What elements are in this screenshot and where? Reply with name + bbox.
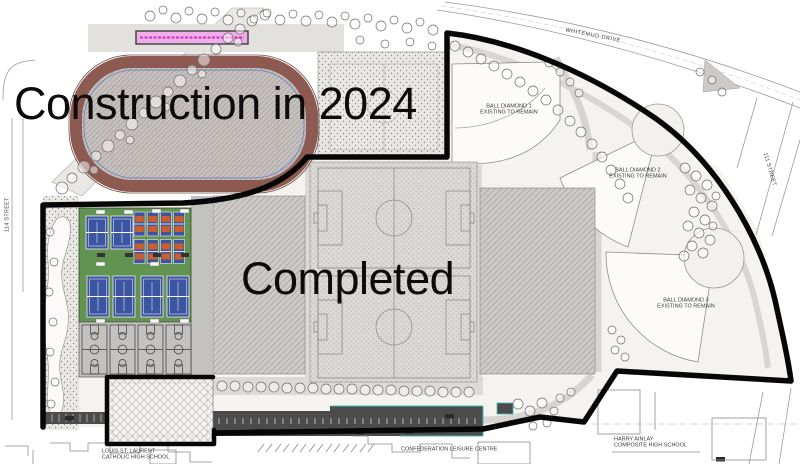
construction-2024-annotation: Construction in 2024 <box>14 81 417 126</box>
basketball-complex <box>79 322 191 377</box>
ball-diamond-3-label: BALL DIAMOND 3 EXISTING TO REMAIN <box>651 297 721 309</box>
harry-school-label: HARRY AINLAY COMPOSITE HIGH SCHOOL <box>614 436 687 448</box>
completed-annotation: Completed <box>241 256 454 301</box>
site-plan: Construction in 2024 Completed WHITEMUD … <box>0 0 800 464</box>
southwest-parking <box>107 377 213 444</box>
leisure-centre-label: CONFEDERATION LEISURE CENTRE <box>401 446 497 452</box>
street-114-label: 114 STREET <box>4 197 10 232</box>
ball-diamond-2-label: BALL DIAMOND 2 EXISTING TO REMAIN <box>603 167 673 179</box>
ball-diamond-1-label: BALL DIAMOND 1 EXISTING TO REMAIN <box>474 103 544 115</box>
louis-school-label: LOUIS ST. LAURENT CATHOLIC HIGH SCHOOL <box>102 448 169 460</box>
site-plan-svg <box>0 0 800 464</box>
construction-tick-marks <box>258 444 374 452</box>
